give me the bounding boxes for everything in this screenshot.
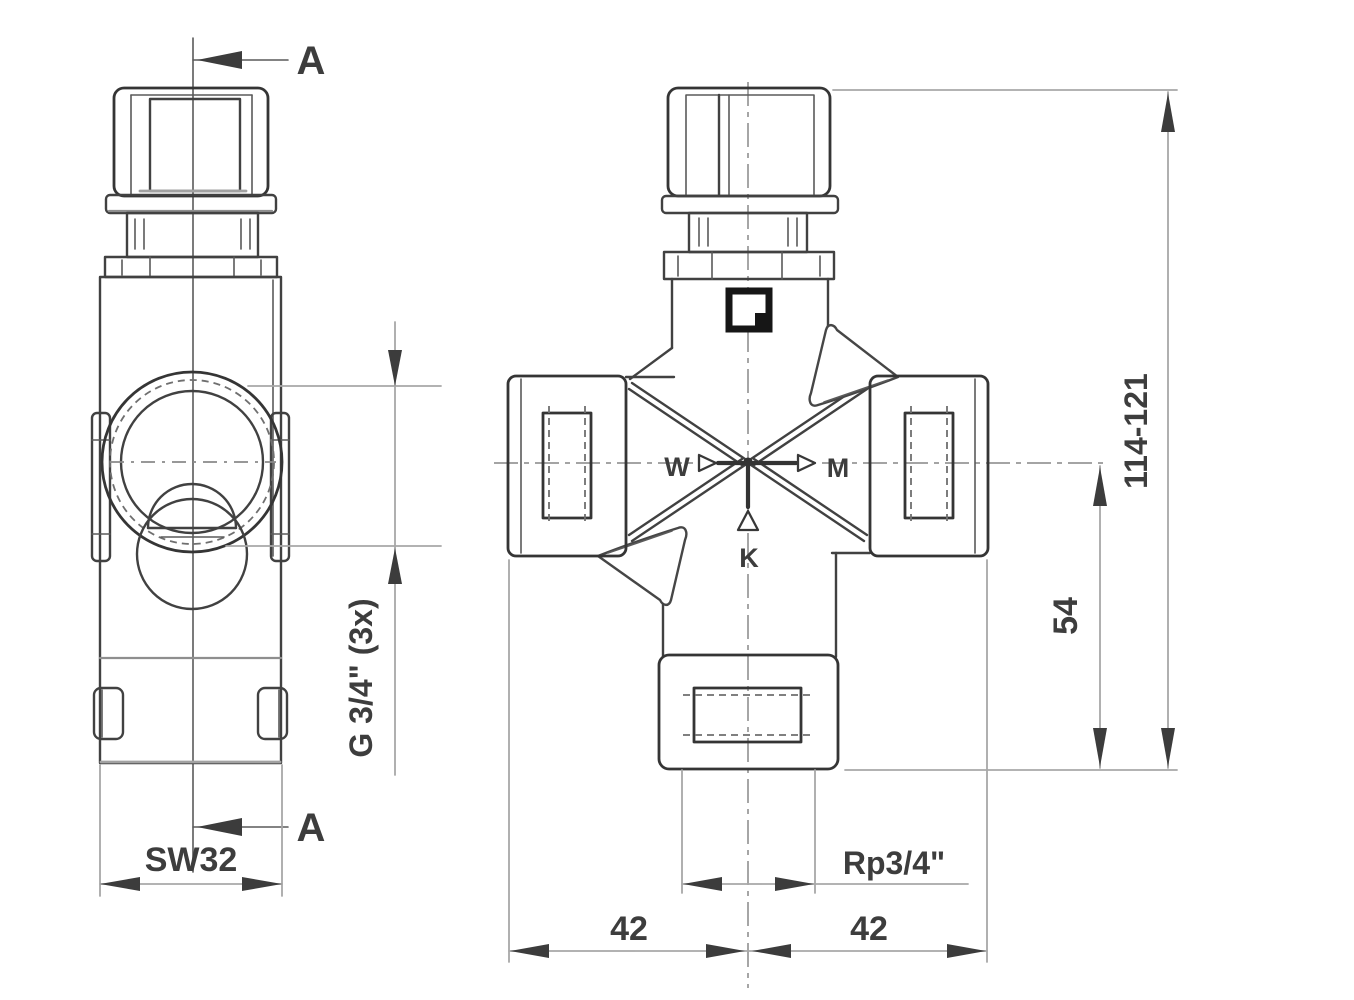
dim-42-left-label: 42 [610, 910, 648, 948]
front-left-port-window [543, 413, 591, 518]
front-view: W M K Rp3/4" 42 42 [494, 82, 1177, 988]
front-right-port [870, 376, 988, 556]
dim-54: 54 [845, 466, 1177, 770]
side-port-thread-circle [110, 380, 274, 544]
flow-arrow-k-head [738, 511, 758, 530]
flow-label-w: W [664, 452, 690, 482]
front-left-port-thread [549, 406, 585, 525]
front-knob [662, 88, 838, 213]
flow-label-m: M [827, 453, 850, 483]
side-view: A [92, 38, 441, 896]
front-right-port-window [905, 413, 953, 518]
dim-114-121-label: 114-121 [1118, 373, 1154, 489]
flow-arrow-m-head [798, 455, 815, 471]
front-hex-nut [664, 252, 834, 279]
side-inner-dome [148, 484, 236, 528]
side-hex-nut [105, 257, 277, 277]
section-arrow-bottom-head [197, 818, 242, 836]
front-knob-collar [662, 196, 838, 213]
valve-technical-drawing: A [0, 0, 1354, 1000]
section-arrow-top-head [197, 51, 242, 69]
dim-g34-label: G 3/4" (3x) [343, 598, 379, 757]
dim-42-right-label: 42 [850, 910, 888, 948]
front-gusset-bottom-left [598, 527, 686, 605]
section-label-a-bottom: A [297, 806, 326, 850]
dim-54-label: 54 [1047, 597, 1085, 635]
front-gusset-top-right [810, 325, 898, 406]
dim-rp34-label: Rp3/4" [843, 845, 945, 881]
front-neck [664, 213, 834, 279]
side-neck [105, 213, 277, 277]
dim-sw32-label: SW32 [145, 841, 238, 879]
side-port-circle [102, 372, 282, 609]
front-body-marking-detail [755, 313, 768, 328]
front-left-port [508, 376, 626, 556]
side-clips [94, 688, 287, 739]
front-right-port-thread [911, 406, 947, 525]
section-arrow-top: A [193, 39, 325, 83]
section-label-a-top: A [297, 39, 326, 83]
drawing-canvas: A [0, 0, 1354, 1000]
dim-sw32: SW32 [100, 765, 282, 896]
dim-rp34: Rp3/4" [682, 770, 968, 893]
side-bottom-port-circle [137, 499, 247, 609]
dim-114-121: 114-121 [833, 90, 1177, 768]
flow-arrow-w-head [699, 455, 716, 471]
flow-label-k: K [739, 543, 759, 573]
side-body [100, 277, 281, 763]
side-knob [106, 88, 276, 213]
